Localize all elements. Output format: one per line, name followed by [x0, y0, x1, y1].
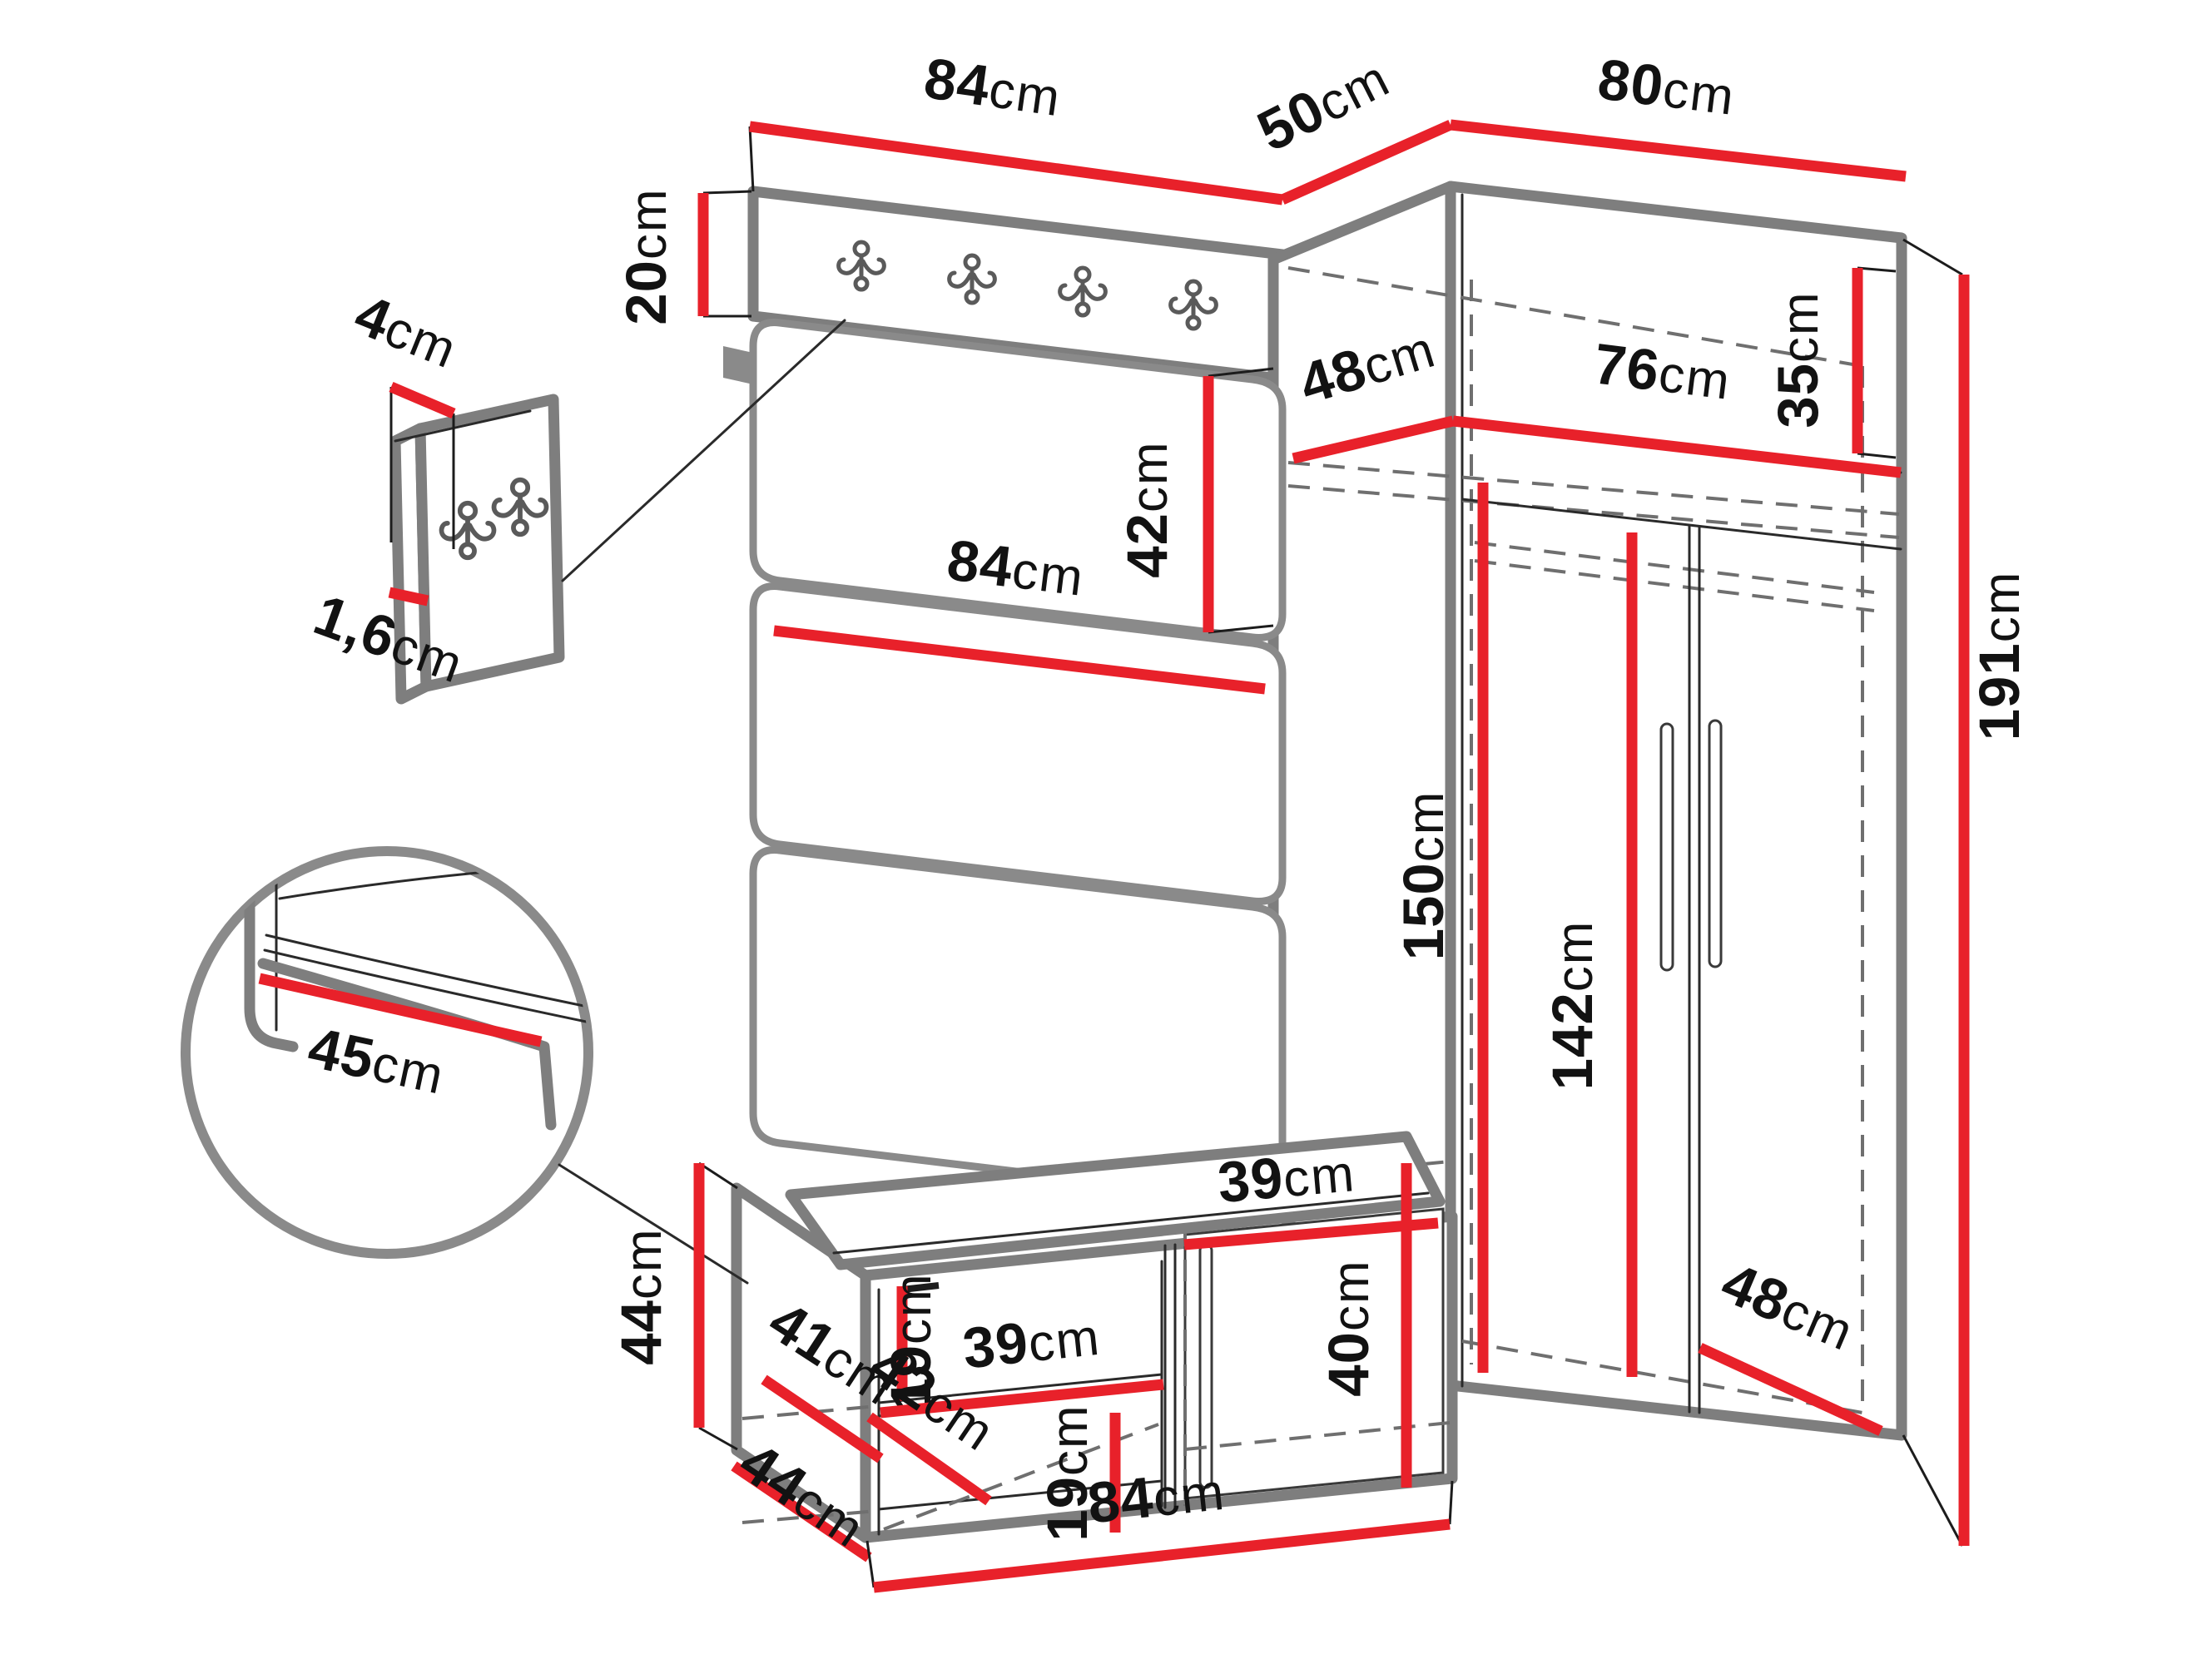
dimension-line-top-panel-width: [750, 126, 1282, 200]
dim-top-panel-width: 84cm: [750, 46, 1282, 200]
dim-label-hook-plate-width: 4cm: [346, 282, 468, 381]
dim-label-hook-strip-height: 20cm: [614, 187, 678, 324]
dim-label-bench-door-width: 39cm: [1215, 1139, 1357, 1215]
dim-label-wardrobe-interior-height: 150cm: [1391, 790, 1456, 961]
coat-strip-side-tab: [723, 346, 753, 384]
dim-label-wardrobe-height: 191cm: [1967, 571, 2031, 741]
wardrobe-door-handle-left: [1661, 724, 1673, 970]
dim-corner-side-depth: 50cm: [1247, 44, 1451, 200]
wardrobe-door-handle-right: [1709, 721, 1721, 967]
dim-wardrobe-width: 80cm: [1451, 47, 1906, 176]
dim-hook-strip-height: 20cm: [614, 187, 751, 324]
dim-bench-height: 44cm: [609, 1163, 737, 1449]
upholstered-panel-3: [753, 850, 1282, 1201]
dim-label-wardrobe-top-height: 35cm: [1766, 290, 1830, 428]
dim-label-corner-side-depth: 50cm: [1247, 44, 1399, 164]
dimension-diagram-page: 84cm 50cm 80cm 20cm 4cm 1,6cm 42cm 84cm: [0, 0, 2212, 1659]
dim-wardrobe-height: 191cm: [1903, 240, 2031, 1546]
dim-label-bench-door-height: 40cm: [1317, 1259, 1381, 1396]
dimension-line-bench-width: [874, 1524, 1450, 1587]
dimension-line-hook-plate-width: [391, 387, 454, 414]
dim-label-wardrobe-door-height: 142cm: [1540, 920, 1604, 1091]
dimension-line-wardrobe-width: [1451, 125, 1906, 176]
dim-label-bench-height: 44cm: [609, 1227, 673, 1364]
dim-label-top-panel-width: 84cm: [920, 46, 1066, 128]
seat-detail-circle: [186, 851, 747, 1283]
bench-door-handle: [1200, 1245, 1212, 1488]
dim-label-upholstered-panel-height: 42cm: [1115, 440, 1179, 577]
dim-label-wardrobe-width: 80cm: [1595, 47, 1739, 127]
furniture-dimension-diagram: 84cm 50cm 80cm 20cm 4cm 1,6cm 42cm 84cm: [0, 0, 2212, 1659]
